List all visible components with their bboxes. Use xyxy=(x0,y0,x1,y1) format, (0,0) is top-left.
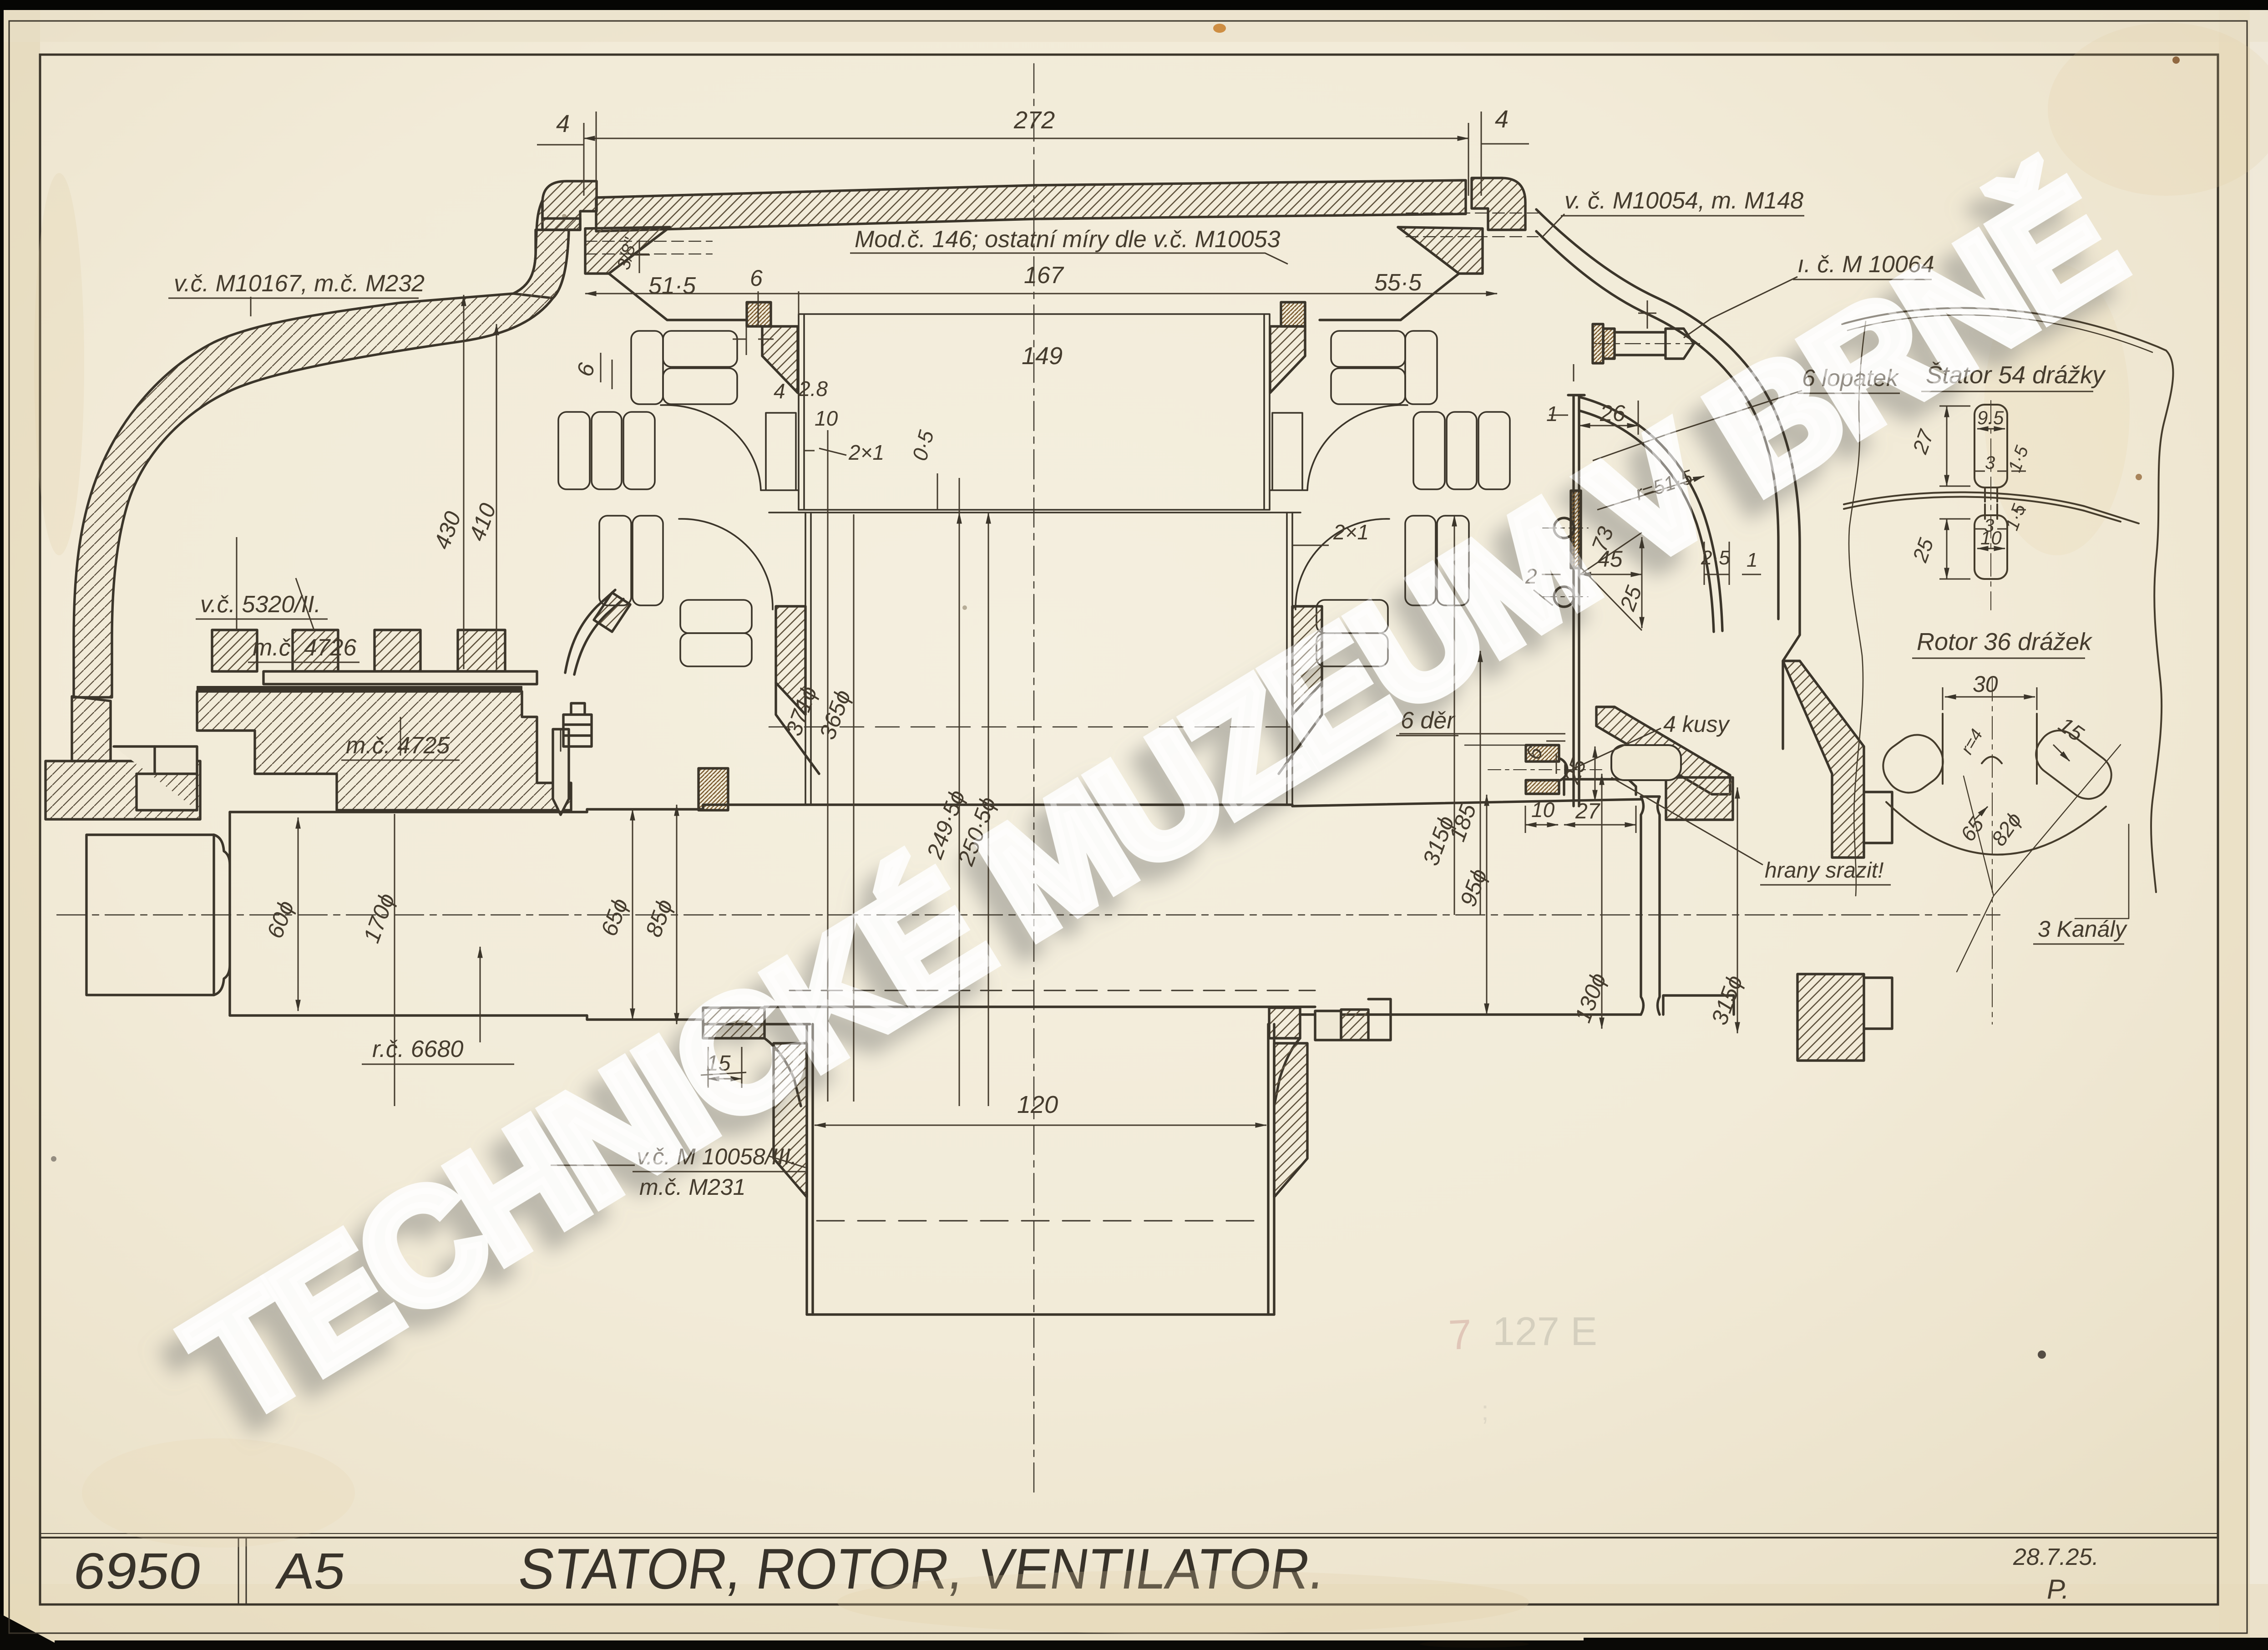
svg-text:v.č. M10167, m.č. M232: v.č. M10167, m.č. M232 xyxy=(174,270,425,297)
svg-text:272: 272 xyxy=(1013,107,1055,134)
svg-text:10: 10 xyxy=(1531,798,1555,822)
svg-text:2.8: 2.8 xyxy=(798,377,828,401)
svg-text:m.č. 4725: m.č. 4725 xyxy=(346,732,450,759)
svg-text:4: 4 xyxy=(1495,106,1509,133)
svg-text:27: 27 xyxy=(1575,799,1601,823)
svg-text:6950: 6950 xyxy=(70,1543,206,1599)
svg-text:m.č. 4726: m.č. 4726 xyxy=(253,635,356,661)
svg-text:1: 1 xyxy=(1546,402,1558,426)
svg-text:v. č. M10054, m. M148: v. č. M10054, m. M148 xyxy=(1564,188,1803,214)
svg-text:30: 30 xyxy=(1973,671,1998,697)
svg-text:7: 7 xyxy=(1448,1311,1473,1359)
svg-text:127 E: 127 E xyxy=(1493,1309,1597,1354)
svg-text:6: 6 xyxy=(750,265,763,291)
svg-text:Mod.č. 146; ostatní míry dle: Mod.č. 146; ostatní míry dle v.č. M10053 xyxy=(855,226,1281,253)
svg-text:51·5: 51·5 xyxy=(648,273,696,299)
svg-text:55·5: 55·5 xyxy=(1374,269,1422,296)
svg-text:r.č. 6680: r.č. 6680 xyxy=(372,1036,463,1062)
svg-text:Rotor 36 drážek: Rotor 36 drážek xyxy=(1917,628,2093,655)
svg-text:;: ; xyxy=(1481,1396,1489,1426)
svg-text:4: 4 xyxy=(774,379,785,403)
svg-text:2×1: 2×1 xyxy=(1333,520,1369,544)
svg-text:3: 3 xyxy=(1985,453,1995,473)
svg-text:4 kusy: 4 kusy xyxy=(1663,711,1731,737)
svg-text:P.: P. xyxy=(2047,1574,2069,1604)
svg-text:1: 1 xyxy=(1747,549,1757,571)
svg-text:167: 167 xyxy=(1024,262,1064,289)
svg-text:149: 149 xyxy=(1022,342,1063,370)
svg-text:9.5: 9.5 xyxy=(1977,407,2004,428)
svg-text:2×1: 2×1 xyxy=(848,441,884,464)
svg-text:10: 10 xyxy=(1980,527,2002,548)
svg-text:4: 4 xyxy=(556,110,570,137)
svg-text:A5: A5 xyxy=(273,1543,350,1599)
svg-text:hrany srazit!: hrany srazit! xyxy=(1765,858,1883,883)
svg-text:10: 10 xyxy=(815,406,838,430)
svg-text:120: 120 xyxy=(1017,1091,1058,1118)
svg-text:28.7.25.: 28.7.25. xyxy=(2013,1544,2099,1570)
svg-text:3 Kanály: 3 Kanály xyxy=(2038,916,2128,942)
svg-text:v.č. 5320/II.: v.č. 5320/II. xyxy=(200,591,321,618)
